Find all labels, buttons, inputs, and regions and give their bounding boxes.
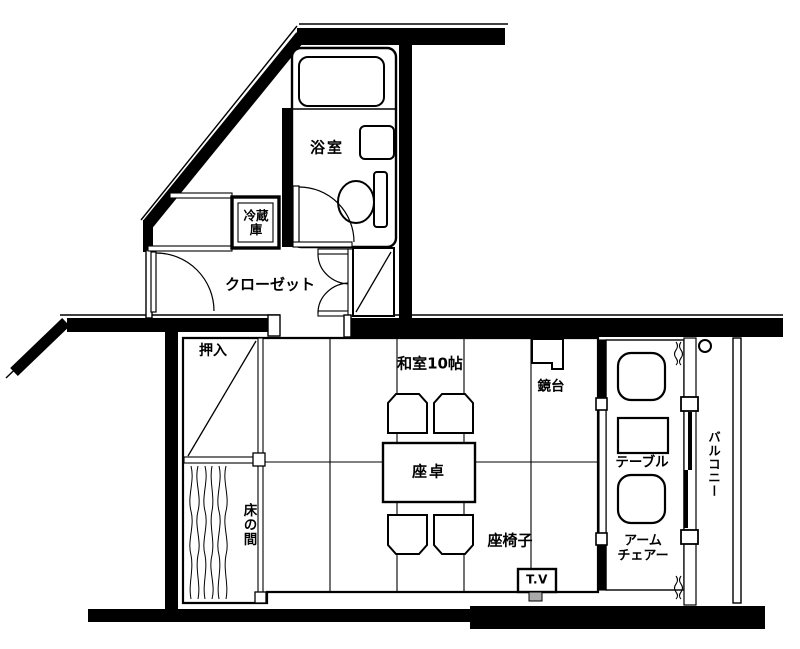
low-table-label: 座卓 xyxy=(412,464,446,481)
closet-shelf xyxy=(353,248,394,316)
washitsu-room xyxy=(183,338,598,603)
closet-double-door xyxy=(318,249,353,316)
washitsu-label: 和室10帖 xyxy=(397,356,463,373)
wall-bottom-right xyxy=(470,606,765,629)
oshiire-label: 押入 xyxy=(199,344,227,360)
armchair-icon xyxy=(618,475,665,523)
floor-chair-icon xyxy=(434,394,473,433)
separator-jamb-bottom xyxy=(596,533,607,545)
balcony-railing xyxy=(733,338,741,603)
floor-chair-icon xyxy=(388,394,427,433)
separator-jamb-top xyxy=(596,398,607,410)
entry-counter-edge xyxy=(170,193,232,198)
wall-left xyxy=(165,332,178,609)
separator-solid-top xyxy=(599,340,606,398)
wall-diagonal-stub xyxy=(14,322,66,372)
separator-solid-bottom xyxy=(599,545,606,590)
side-table-label: テーブル xyxy=(615,455,668,470)
tokobashira-post xyxy=(253,453,265,466)
column-divider xyxy=(258,338,263,603)
doorway-cap-right xyxy=(344,315,351,337)
wall-mid-band-left xyxy=(67,318,268,332)
doorway-cap-left xyxy=(268,315,280,336)
side-table-icon xyxy=(618,418,668,453)
tokonoma-label: 床の間 xyxy=(240,503,255,547)
entrance-door-arc xyxy=(156,253,214,311)
door-handle xyxy=(681,397,698,411)
bathtub-icon xyxy=(299,57,384,106)
floor-chair-label: 座椅子 xyxy=(487,533,532,550)
mirror-stand-label: 鏡台 xyxy=(538,379,565,394)
double-door-upper-leaf xyxy=(318,249,350,254)
floorplan-drawing xyxy=(0,0,800,649)
wall-bottom-left xyxy=(88,609,470,622)
toilet-tank-icon xyxy=(374,172,387,227)
double-door-upper-arc xyxy=(318,254,350,284)
toilet-bowl-icon xyxy=(338,181,374,223)
refrigerator-label: 冷蔵庫 xyxy=(243,209,268,237)
closet-top-edge xyxy=(148,246,232,251)
double-door-lower-arc xyxy=(318,283,350,313)
wall-bath-right xyxy=(399,45,412,337)
bathroom-door-leaf xyxy=(293,186,299,243)
wall-top-band xyxy=(297,28,505,45)
glass-panel xyxy=(684,470,688,528)
armchair-label: アームチェアー xyxy=(617,534,668,563)
sink-icon xyxy=(360,126,394,159)
balcony-drain-icon xyxy=(699,340,711,352)
bathroom-label: 浴室 xyxy=(310,140,344,157)
glass-panel xyxy=(688,412,692,470)
armchair-icon xyxy=(618,353,665,400)
closet-label: クローゼット xyxy=(225,277,315,294)
tv-label: T.V xyxy=(526,573,548,586)
floor-chair-icon xyxy=(434,515,473,554)
entrance-door-leaf xyxy=(151,252,156,312)
floor-chair-icon xyxy=(388,515,427,554)
balcony-label: バルコニー xyxy=(706,430,720,498)
bottom-step-post xyxy=(255,592,266,603)
floorplan-canvas: 浴室 冷蔵庫 クローゼット 押入 床の間 和室10帖 鏡台 座卓 座椅子 T.V… xyxy=(0,0,800,649)
oshiire-bottom-edge xyxy=(184,457,258,463)
bathroom-threshold xyxy=(293,242,352,247)
door-handle xyxy=(681,530,698,544)
wall-mid-band-right xyxy=(351,318,783,337)
